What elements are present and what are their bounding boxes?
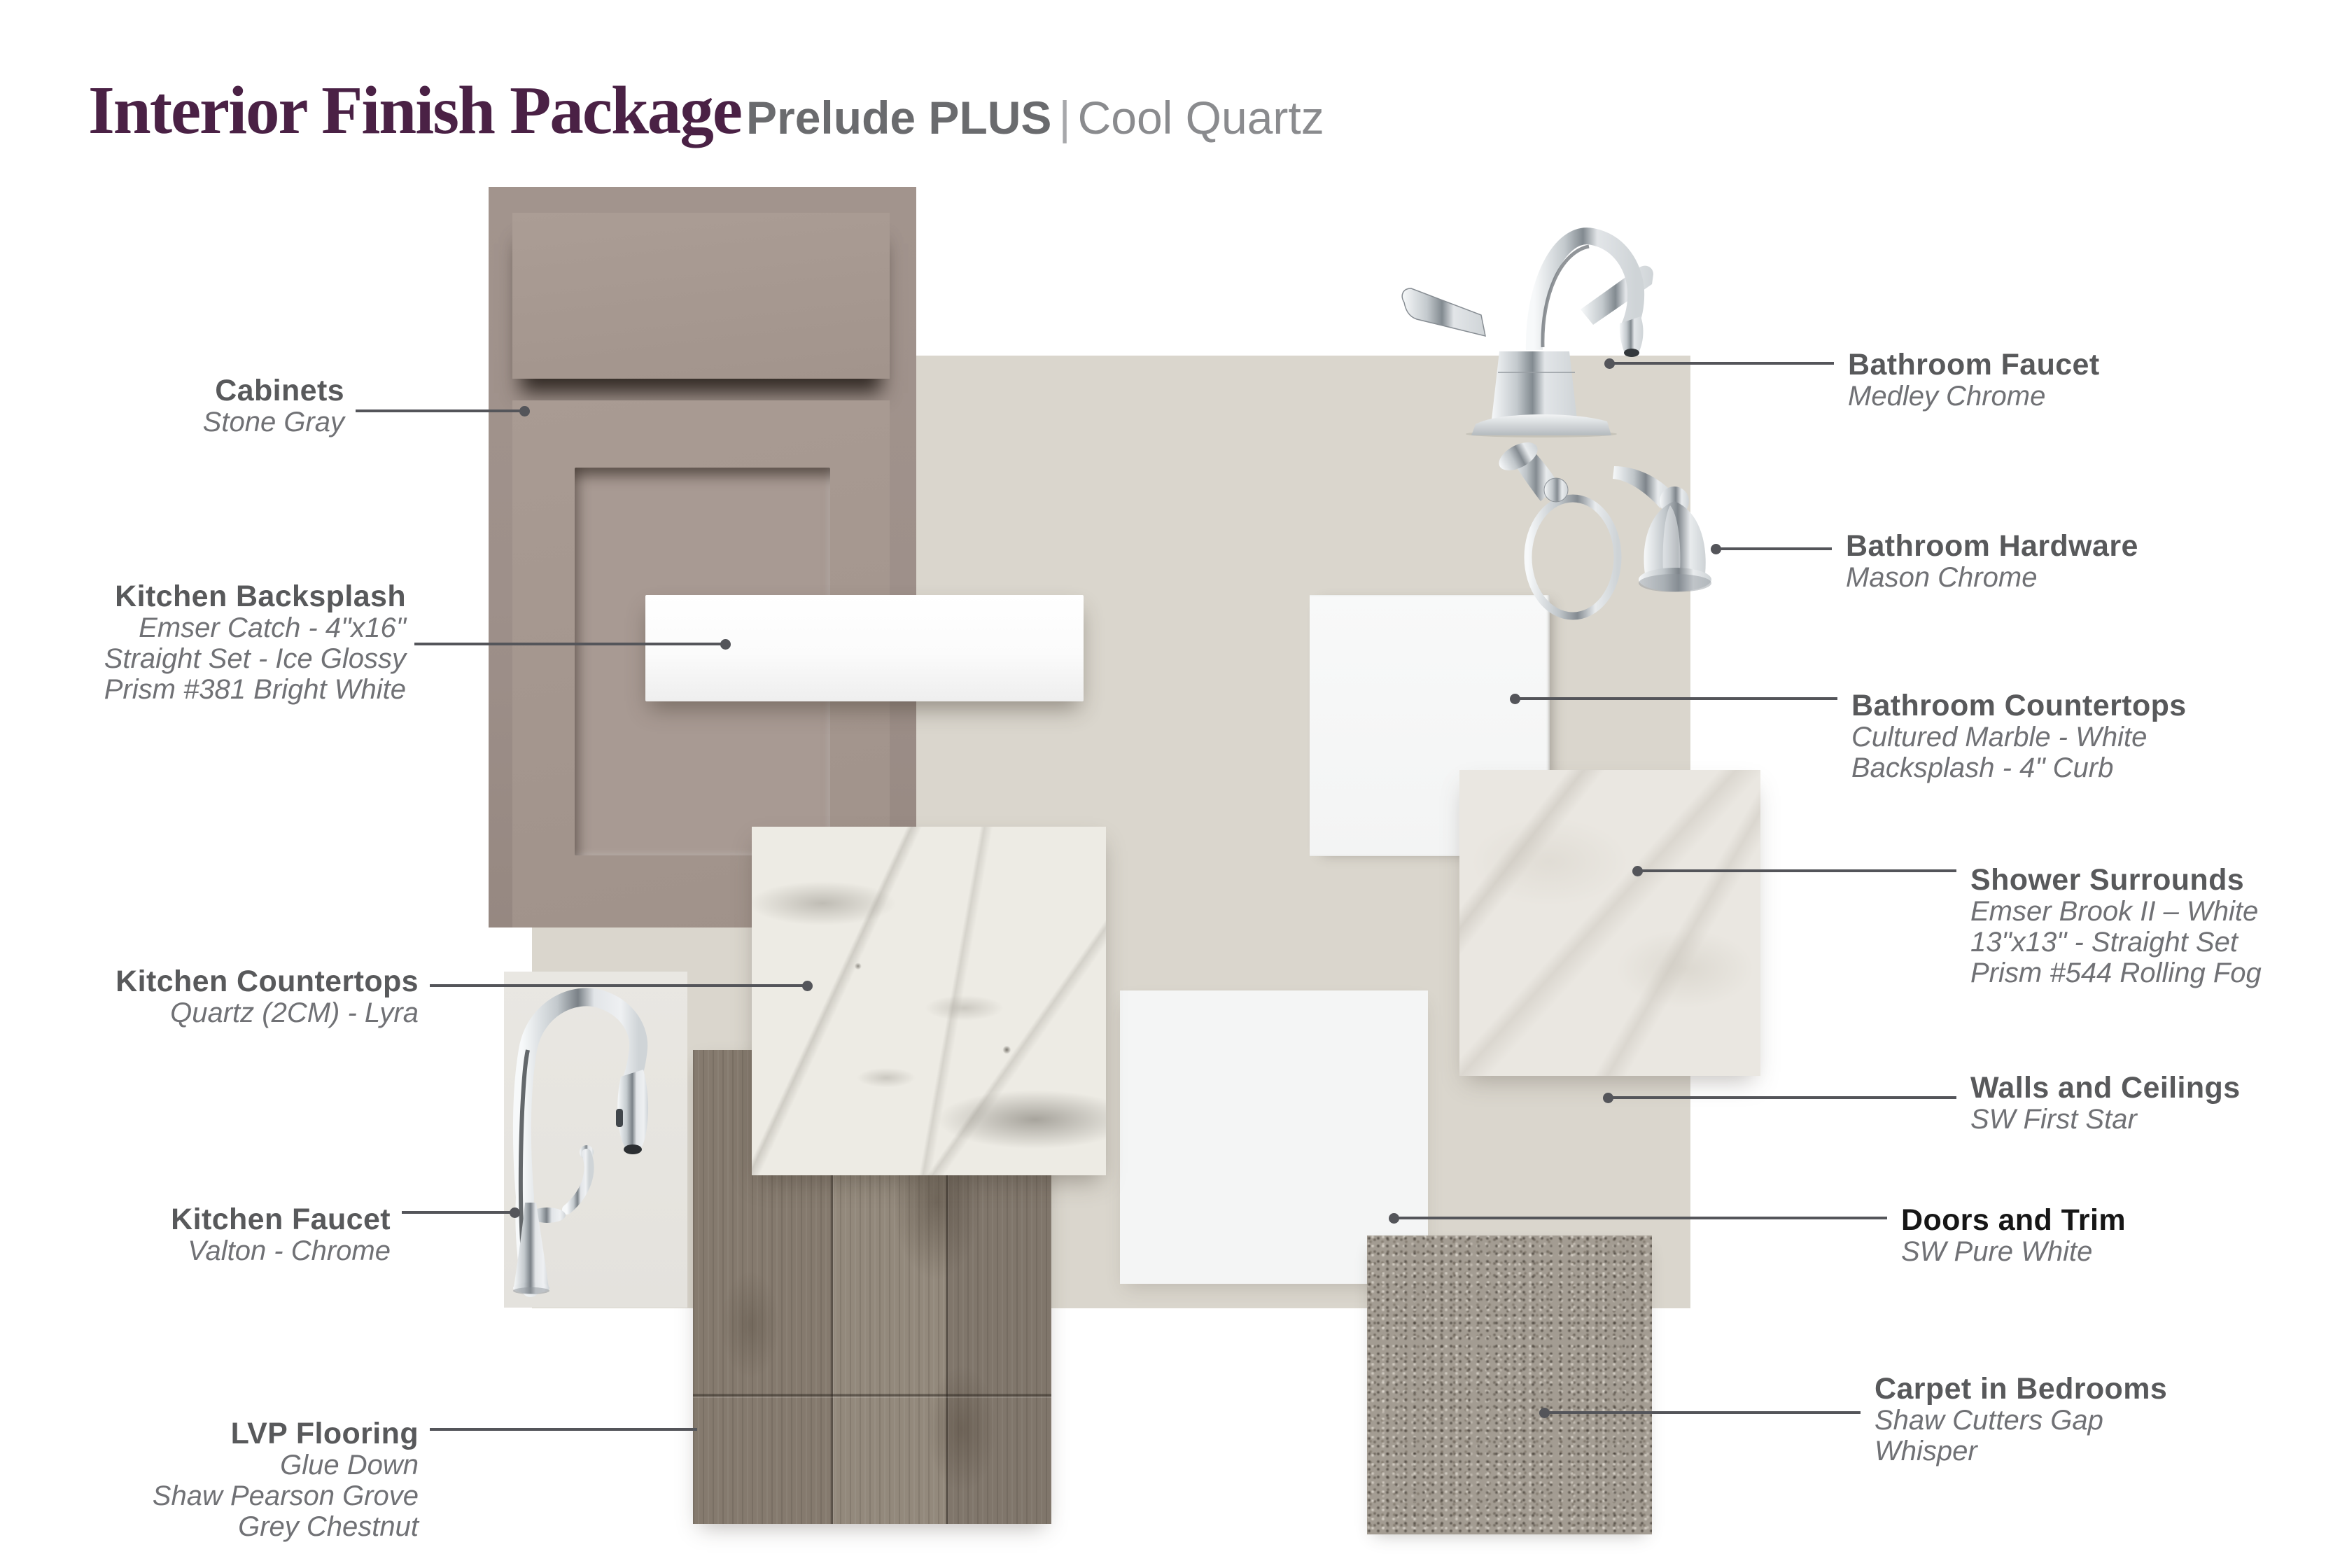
label-detail: Whisper bbox=[1875, 1436, 2167, 1466]
label-detail: Quartz (2CM) - Lyra bbox=[115, 997, 419, 1028]
label-bathroom-faucet: Bathroom Faucet Medley Chrome bbox=[1848, 349, 2100, 412]
label-title: Cabinets bbox=[203, 374, 344, 407]
leader-line-walls-ceilings bbox=[1609, 1096, 1956, 1099]
label-title: Kitchen Countertops bbox=[115, 965, 419, 997]
leader-dot-doors-trim bbox=[1389, 1213, 1399, 1224]
carpet-swatch bbox=[1367, 1235, 1652, 1534]
label-detail: Glue Down bbox=[153, 1450, 419, 1480]
label-kitchen-backsplash: Kitchen Backsplash Emser Catch - 4"x16" … bbox=[104, 580, 406, 705]
leader-dot-bathroom-hardware bbox=[1711, 544, 1721, 554]
label-title: Kitchen Faucet bbox=[171, 1203, 391, 1235]
label-kitchen-countertops: Kitchen Countertops Quartz (2CM) - Lyra bbox=[115, 965, 419, 1028]
label-title: Shower Surrounds bbox=[1970, 864, 2262, 896]
label-detail: Grey Chestnut bbox=[153, 1511, 419, 1542]
label-detail: Emser Catch - 4"x16" bbox=[104, 612, 406, 643]
label-title: Bathroom Faucet bbox=[1848, 349, 2100, 381]
leader-dot-bathroom-faucet bbox=[1604, 358, 1615, 369]
leader-dot-cabinets bbox=[519, 406, 530, 416]
leader-line-doors-trim bbox=[1394, 1217, 1887, 1219]
label-carpet: Carpet in Bedrooms Shaw Cutters Gap Whis… bbox=[1875, 1373, 2167, 1466]
label-title: Bathroom Countertops bbox=[1851, 689, 2187, 722]
label-detail: Emser Brook II – White bbox=[1970, 896, 2262, 927]
subtitle-divider: | bbox=[1051, 92, 1077, 143]
label-detail: Stone Gray bbox=[203, 407, 344, 437]
leader-dot-bathroom-countertops bbox=[1510, 694, 1520, 704]
label-title: LVP Flooring bbox=[153, 1417, 419, 1450]
leader-line-cabinets bbox=[356, 409, 525, 412]
label-title: Bathroom Hardware bbox=[1846, 530, 2138, 562]
leader-dot-carpet bbox=[1539, 1408, 1550, 1418]
label-detail: Straight Set - Ice Glossy bbox=[104, 643, 406, 674]
shower-surround-swatch bbox=[1459, 770, 1760, 1076]
label-detail: Shaw Cutters Gap bbox=[1875, 1405, 2167, 1436]
kitchen-countertop-swatch bbox=[752, 827, 1106, 1175]
leader-dot-kitchen-backsplash bbox=[720, 639, 731, 650]
label-kitchen-faucet: Kitchen Faucet Valton - Chrome bbox=[171, 1203, 391, 1266]
leader-line-kitchen-faucet bbox=[402, 1211, 515, 1214]
leader-line-shower-surrounds bbox=[1638, 869, 1956, 872]
page-title: Interior Finish Package bbox=[88, 76, 741, 146]
label-detail: SW First Star bbox=[1970, 1104, 2241, 1135]
label-detail: Prism #544 Rolling Fog bbox=[1970, 958, 2262, 988]
robe-hook-image bbox=[1609, 448, 1742, 609]
leader-dot-kitchen-countertops bbox=[802, 981, 813, 991]
label-title: Kitchen Backsplash bbox=[104, 580, 406, 612]
label-detail: 13"x13" - Straight Set bbox=[1970, 927, 2262, 958]
package-subtitle: Prelude PLUS|Cool Quartz bbox=[746, 93, 1324, 142]
finish-package-board: Interior Finish Package Prelude PLUS|Coo… bbox=[0, 0, 2347, 1568]
label-title: Carpet in Bedrooms bbox=[1875, 1373, 2167, 1405]
label-bathroom-countertops: Bathroom Countertops Cultured Marble - W… bbox=[1851, 689, 2187, 783]
label-title: Walls and Ceilings bbox=[1970, 1072, 2241, 1104]
leader-line-lvp-flooring bbox=[430, 1428, 697, 1431]
package-name: Prelude PLUS bbox=[746, 92, 1051, 143]
leader-line-bathroom-countertops bbox=[1515, 697, 1837, 700]
cabinet-drawer-front bbox=[512, 213, 890, 379]
leader-dot-kitchen-faucet bbox=[510, 1207, 520, 1218]
label-doors-trim: Doors and Trim SW Pure White bbox=[1901, 1204, 2126, 1267]
leader-line-kitchen-backsplash bbox=[414, 643, 726, 645]
leader-dot-walls-ceilings bbox=[1603, 1093, 1613, 1103]
label-detail: Prism #381 Bright White bbox=[104, 674, 406, 705]
label-detail: Mason Chrome bbox=[1846, 562, 2138, 593]
leader-dot-shower-surrounds bbox=[1632, 866, 1643, 876]
label-lvp-flooring: LVP Flooring Glue Down Shaw Pearson Grov… bbox=[153, 1417, 419, 1542]
label-walls-ceilings: Walls and Ceilings SW First Star bbox=[1970, 1072, 2241, 1135]
leader-line-carpet bbox=[1545, 1411, 1861, 1414]
leader-line-kitchen-countertops bbox=[430, 984, 808, 987]
cabinet-swatch bbox=[489, 187, 916, 927]
label-detail: Shaw Pearson Grove bbox=[153, 1480, 419, 1511]
bathroom-faucet-image bbox=[1393, 203, 1687, 437]
label-detail: Medley Chrome bbox=[1848, 381, 2100, 412]
label-cabinets: Cabinets Stone Gray bbox=[203, 374, 344, 437]
leader-line-bathroom-faucet bbox=[1610, 362, 1834, 365]
kitchen-backsplash-swatch bbox=[645, 595, 1084, 701]
label-shower-surrounds: Shower Surrounds Emser Brook II – White … bbox=[1970, 864, 2262, 988]
label-title: Doors and Trim bbox=[1901, 1204, 2126, 1236]
variant-name: Cool Quartz bbox=[1078, 92, 1324, 143]
leader-line-bathroom-hardware bbox=[1716, 547, 1832, 550]
kitchen-faucet-image bbox=[504, 972, 687, 1308]
label-bathroom-hardware: Bathroom Hardware Mason Chrome bbox=[1846, 530, 2138, 593]
label-detail: SW Pure White bbox=[1901, 1236, 2126, 1267]
label-detail: Valton - Chrome bbox=[171, 1235, 391, 1266]
label-detail: Backsplash - 4" Curb bbox=[1851, 752, 2187, 783]
label-detail: Cultured Marble - White bbox=[1851, 722, 2187, 752]
